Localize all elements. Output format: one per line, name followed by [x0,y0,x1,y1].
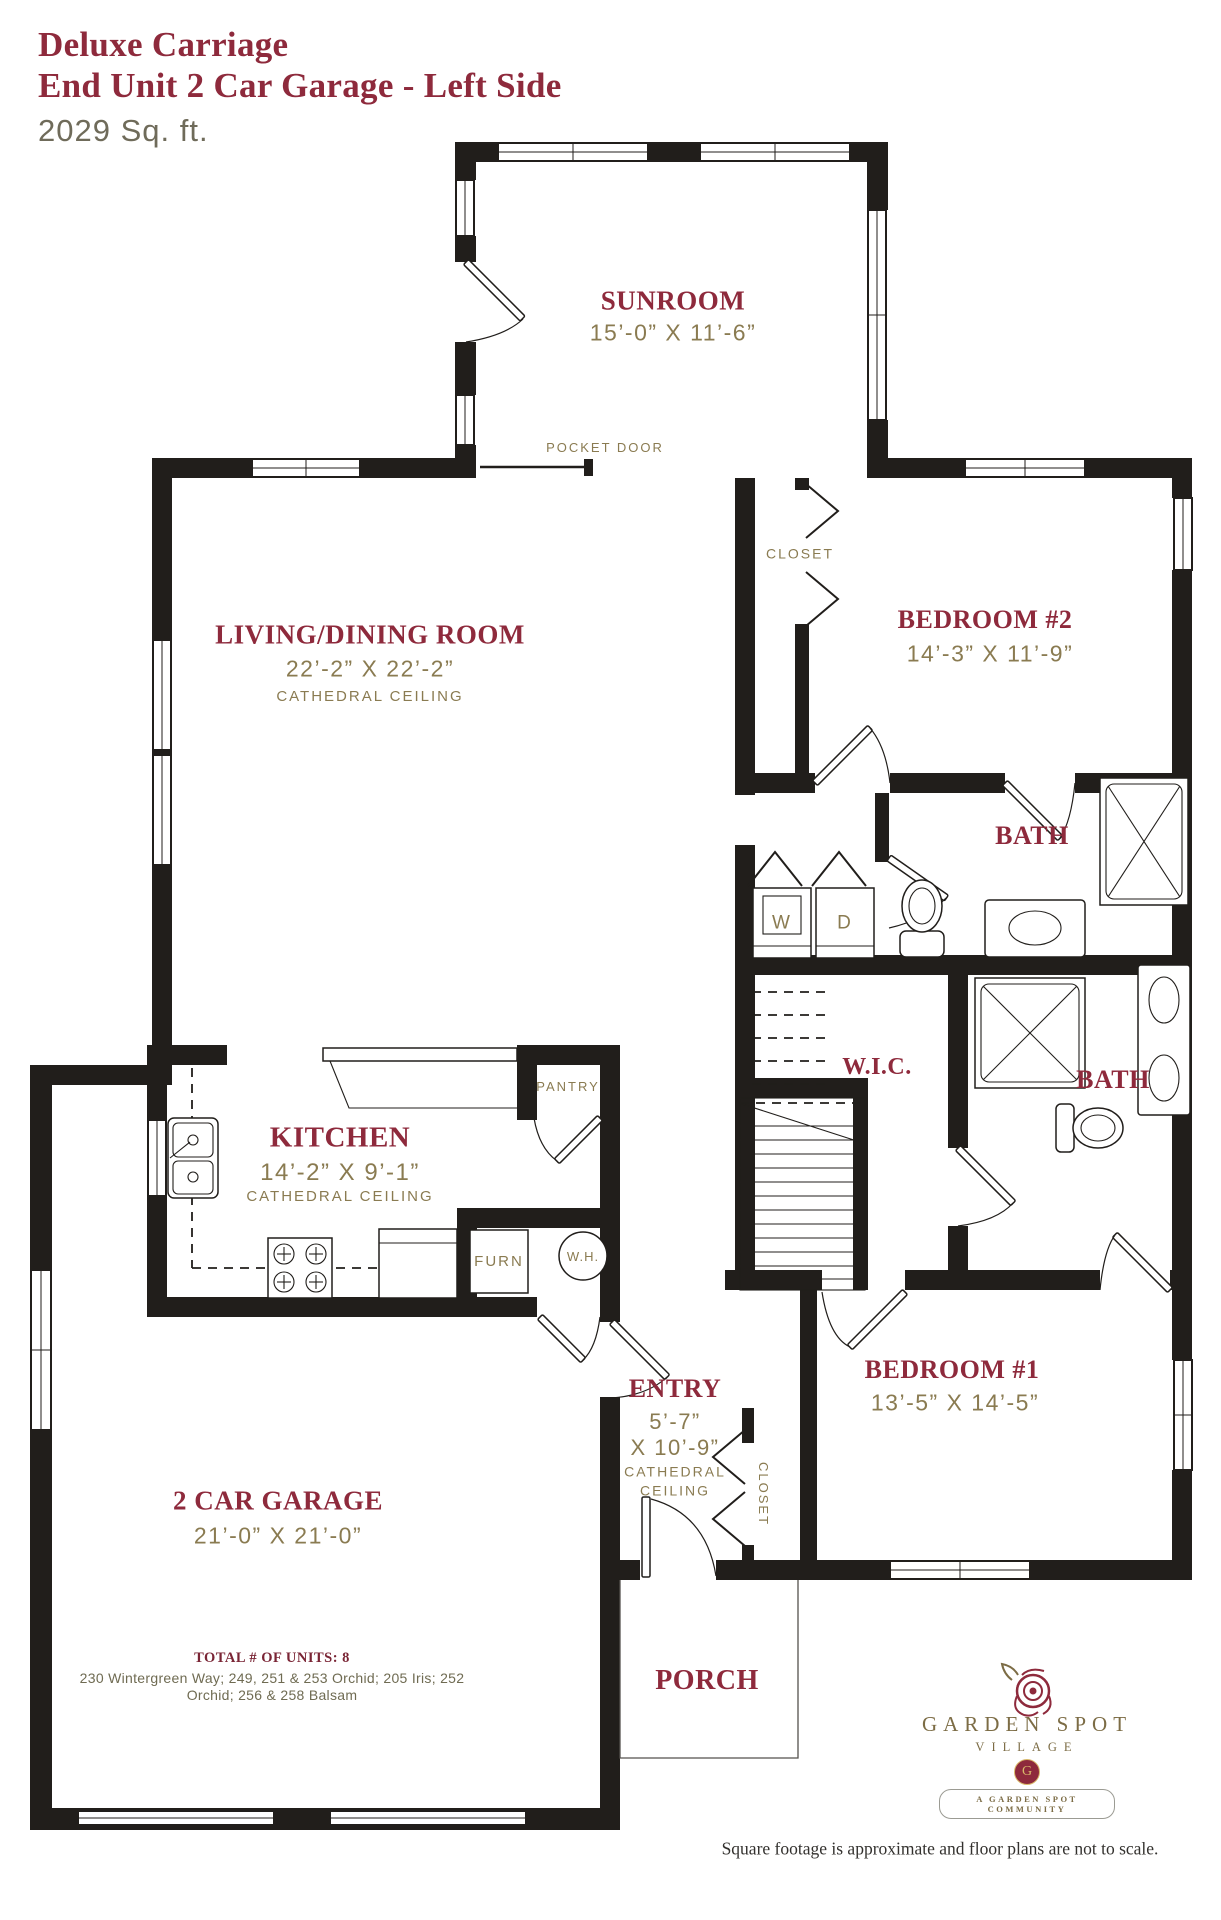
floor-plan-page: Deluxe Carriage End Unit 2 Car Garage - … [0,0,1221,1920]
disclaimer-text: Square footage is approximate and floor … [722,1839,1159,1860]
living-room-dims: 22’-2” X 22’-2” [286,657,454,682]
bath2-label: BATH [1076,1066,1150,1094]
bath1-toilet [900,880,944,957]
bedroom2-closet-label: CLOSET [766,546,834,561]
wic-shelves [752,992,830,1084]
washer-label: W [772,914,792,935]
page-title-line1: Deluxe Carriage [38,24,562,65]
dryer-label: D [837,914,853,935]
pocket-door-label: POCKET DOOR [546,441,664,455]
sunroom-dims: 15’-0” X 11’-6” [590,321,757,346]
logo-ribbon: A GARDEN SPOT COMMUNITY [939,1789,1115,1819]
logo-name: GARDEN SPOT [897,1712,1157,1737]
entry-note-line2: CEILING [640,1483,710,1498]
pantry-label: PANTRY [536,1080,600,1094]
kitchen-label: KITCHEN [270,1122,410,1153]
furnace-closet-door [538,1315,600,1363]
bath2-shower [975,978,1085,1088]
garage-dims: 21’-0” X 21’-0” [194,1524,362,1549]
porch-label: PORCH [655,1666,759,1696]
bath2-hall-door [956,1146,1016,1226]
refrigerator [379,1229,457,1298]
bath2-toilet [1056,1104,1123,1152]
page-title-line2: End Unit 2 Car Garage - Left Side [38,65,562,106]
bedroom1-label: BEDROOM #1 [865,1356,1040,1384]
logo-tagline: A GARDEN SPOT COMMUNITY [942,1794,1112,1814]
pantry-door [534,1116,602,1164]
bedroom1-dims: 13’-5” X 14’-5” [871,1391,1039,1416]
staircase [740,1098,865,1290]
bedroom2-label: BEDROOM #2 [898,606,1073,634]
entry-note-line1: CATHEDRAL [624,1464,726,1479]
entry-label: ENTRY [629,1375,722,1403]
kitchen-sink [168,1118,218,1198]
furnace-label: FURN [474,1254,524,1270]
address-line1: 230 Wintergreen Way; 249, 251 & 253 Orch… [42,1670,502,1687]
laundry-bifold [748,852,866,886]
bedroom2-door [813,725,890,785]
title-block: Deluxe Carriage End Unit 2 Car Garage - … [38,24,562,149]
garage-label: 2 CAR GARAGE [173,1486,383,1515]
wic-label: W.I.C. [842,1055,911,1081]
sunroom-label: SUNROOM [601,286,746,315]
kitchen-dims: 14’-2” X 9’-1” [260,1160,420,1186]
bedroom1-door [822,1290,907,1350]
bath1-shower [1100,778,1188,905]
entry-dims-line2: X 10’-9” [630,1436,719,1460]
logo-village: VILLAGE [897,1740,1157,1755]
bath1-sink [985,900,1085,957]
square-footage: 2029 Sq. ft. [38,113,562,149]
units-block: TOTAL # OF UNITS: 8 230 Wintergreen Way;… [42,1650,502,1704]
entry-dims-line1: 5’-7” [649,1410,701,1434]
living-room-note: CATHEDRAL CEILING [276,689,463,705]
pocket-door-symbol [480,459,593,476]
kitchen-note: CATHEDRAL CEILING [246,1189,433,1205]
bath1-label: BATH [995,822,1069,850]
bedroom2-dims: 14’-3” X 11’-9” [907,642,1074,667]
front-door [642,1497,716,1577]
total-units-label: TOTAL # OF UNITS: 8 [42,1650,502,1667]
address-line2: Orchid; 256 & 258 Balsam [42,1687,502,1704]
entry-closet-label: CLOSET [756,1462,770,1526]
logo-monogram: G [1014,1759,1040,1785]
water-heater-label: W.H. [567,1250,599,1264]
living-room-label: LIVING/DINING ROOM [215,620,525,649]
bath2-bedroom-door [1100,1232,1172,1292]
sunroom-door [464,260,526,342]
gardenspot-logo: GARDEN SPOT VILLAGE G A GARDEN SPOT COMM… [897,1660,1157,1819]
stove [268,1238,332,1298]
